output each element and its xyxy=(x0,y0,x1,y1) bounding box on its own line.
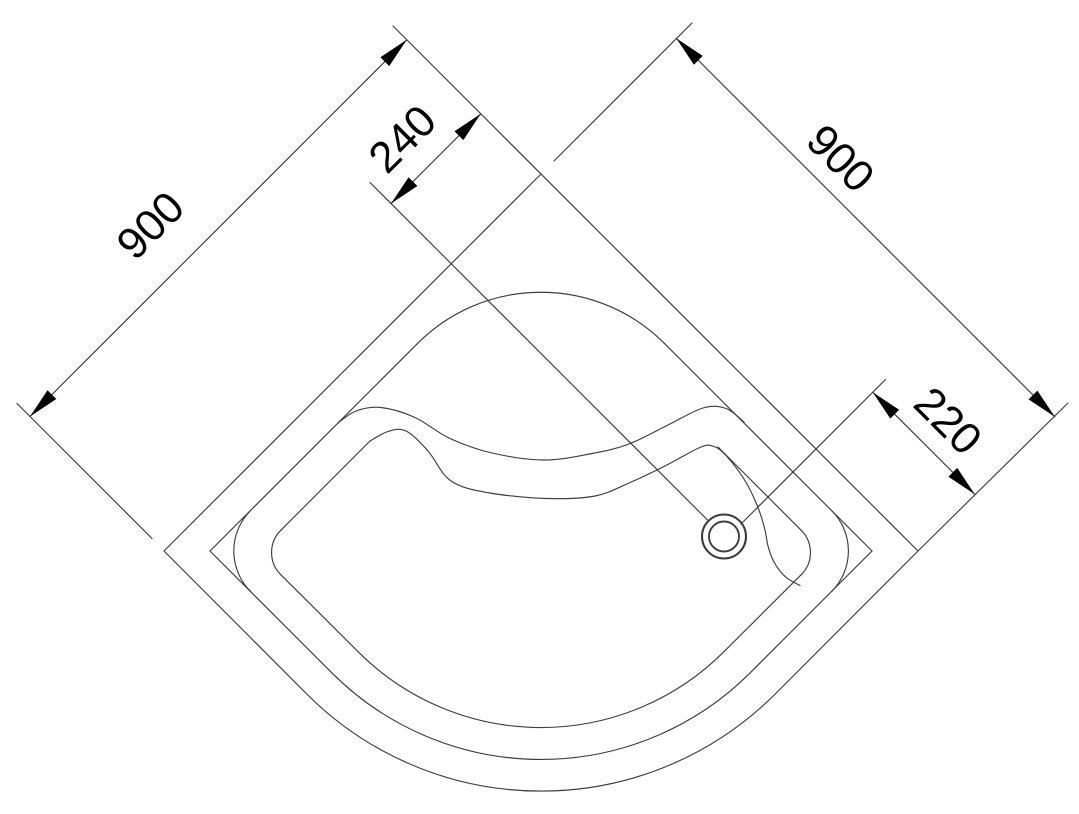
svg-text:220: 220 xyxy=(904,378,991,465)
svg-text:900: 900 xyxy=(107,182,194,269)
svg-text:900: 900 xyxy=(797,115,884,202)
svg-text:240: 240 xyxy=(359,96,446,183)
